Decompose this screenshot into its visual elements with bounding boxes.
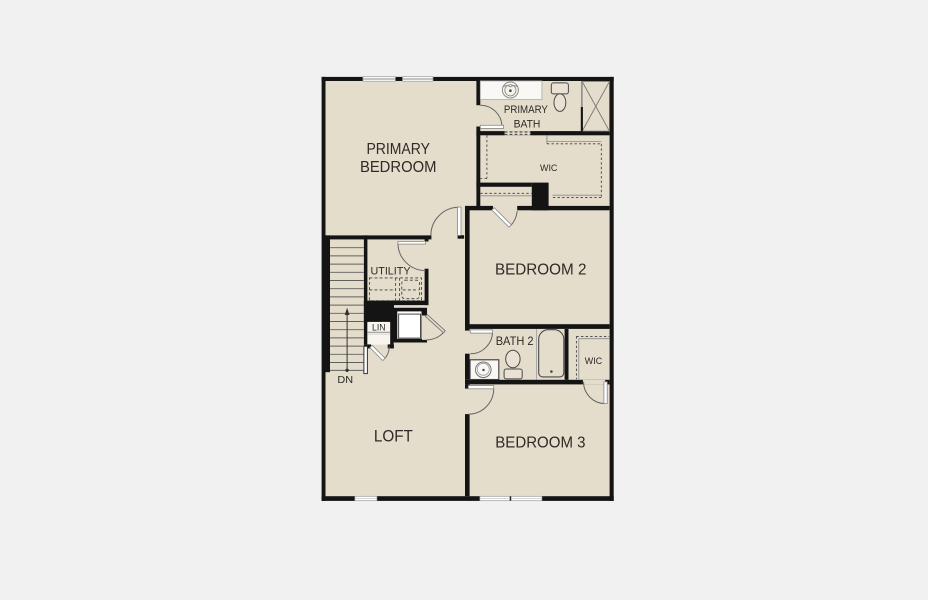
svg-text:BEDROOM 2: BEDROOM 2 bbox=[495, 262, 587, 279]
svg-text:BATH: BATH bbox=[514, 118, 541, 130]
svg-text:LOFT: LOFT bbox=[374, 427, 413, 445]
svg-text:BEDROOM: BEDROOM bbox=[360, 159, 437, 176]
svg-text:PRIMARY: PRIMARY bbox=[504, 104, 548, 116]
svg-text:PRIMARY: PRIMARY bbox=[366, 141, 430, 158]
svg-text:WIC: WIC bbox=[540, 162, 558, 173]
svg-text:WIC: WIC bbox=[585, 355, 603, 366]
svg-text:UTILITY: UTILITY bbox=[371, 266, 411, 278]
svg-text:BEDROOM 3: BEDROOM 3 bbox=[495, 435, 585, 452]
svg-text:LIN: LIN bbox=[372, 323, 386, 333]
svg-text:BATH 2: BATH 2 bbox=[496, 334, 534, 348]
svg-text:DN: DN bbox=[337, 375, 353, 386]
